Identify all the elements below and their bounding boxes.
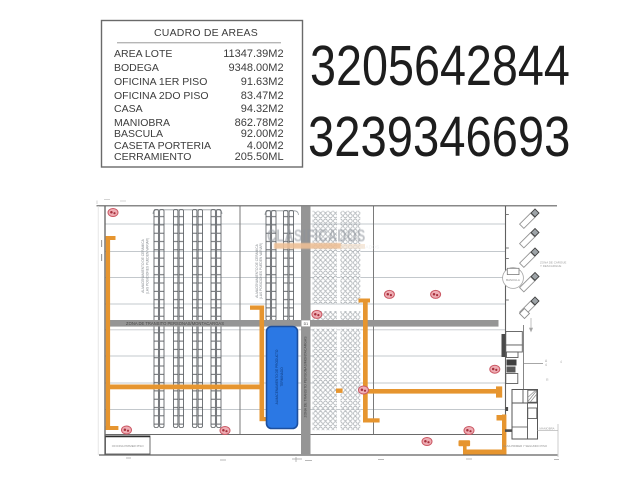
svg-text:OFICINA PRIMER PISO: OFICINA PRIMER PISO — [112, 444, 145, 448]
svg-text:OFICINA 2DO PISO: OFICINA 2DO PISO — [114, 90, 209, 102]
svg-text:9348: 9348 — [229, 62, 253, 74]
svg-text:ALMACENAMIENTO DE PRODUCTO: ALMACENAMIENTO DE PRODUCTO — [275, 349, 279, 404]
svg-text:CERRAMIENTO: CERRAMIENTO — [114, 151, 191, 163]
svg-text:(LAS POSICIONES PUEDEN VARIAR): (LAS POSICIONES PUEDEN VARIAR) — [259, 243, 263, 299]
svg-text:TERMINADO: TERMINADO — [280, 367, 284, 387]
svg-text:4: 4 — [545, 363, 547, 367]
svg-text:D1: D1 — [304, 322, 309, 326]
svg-text:MANIOBRA: MANIOBRA — [540, 427, 555, 431]
svg-text:83: 83 — [241, 90, 253, 102]
svg-text:.00M2: .00M2 — [253, 62, 284, 74]
svg-text:.47M2: .47M2 — [253, 90, 284, 102]
svg-text:ZONA DE TRANSITO PERSONAS/MONT: ZONA DE TRANSITO PERSONAS/MONTACARGAS — [126, 321, 224, 326]
svg-text:.50ML: .50ML — [253, 151, 284, 163]
svg-text:.63M2: .63M2 — [253, 76, 284, 88]
svg-text:92: 92 — [241, 128, 253, 140]
svg-text:BASCULA: BASCULA — [506, 278, 520, 282]
svg-text:3205642844: 3205642844 — [310, 35, 570, 98]
svg-text:Y DESCARGUE: Y DESCARGUE — [540, 264, 561, 268]
svg-text:BASCULA: BASCULA — [114, 128, 163, 140]
svg-text:BODEGA: BODEGA — [114, 62, 159, 74]
svg-text:ZONA DE TRANSITO PERSONAS/MONT: ZONA DE TRANSITO PERSONAS/MONTACARGAS — [304, 336, 308, 418]
svg-text:4: 4 — [560, 360, 562, 364]
svg-text:CASA: CASA — [114, 103, 143, 115]
svg-text:.32M2: .32M2 — [253, 103, 284, 115]
svg-text:.39M2: .39M2 — [253, 48, 284, 60]
svg-text:205: 205 — [235, 151, 253, 163]
svg-text:AREA LOTE: AREA LOTE — [114, 48, 172, 60]
svg-text:CUADRO DE AREAS: CUADRO DE AREAS — [154, 27, 258, 39]
svg-text:3239346693: 3239346693 — [308, 106, 570, 169]
svg-text:91: 91 — [241, 76, 253, 88]
svg-text:CASA PRIMER Y SEGUNDO PISO: CASA PRIMER Y SEGUNDO PISO — [503, 444, 548, 448]
svg-text:94: 94 — [241, 103, 253, 115]
svg-text:(LAS POSICIONES PUEDEN VARIAR): (LAS POSICIONES PUEDEN VARIAR) — [146, 238, 150, 294]
svg-text:11347: 11347 — [223, 48, 253, 60]
svg-text:ALMACENAMIENTO DE CERAMICA: ALMACENAMIENTO DE CERAMICA — [141, 238, 145, 292]
svg-text:OFICINA 1ER PISO: OFICINA 1ER PISO — [114, 76, 207, 88]
svg-text:.00M2: .00M2 — [253, 128, 284, 140]
svg-text:ALMACENAMIENTO DE CERAMICA: ALMACENAMIENTO DE CERAMICA — [255, 243, 259, 297]
svg-text:CLASIFICADOS: CLASIFICADOS — [343, 245, 380, 251]
